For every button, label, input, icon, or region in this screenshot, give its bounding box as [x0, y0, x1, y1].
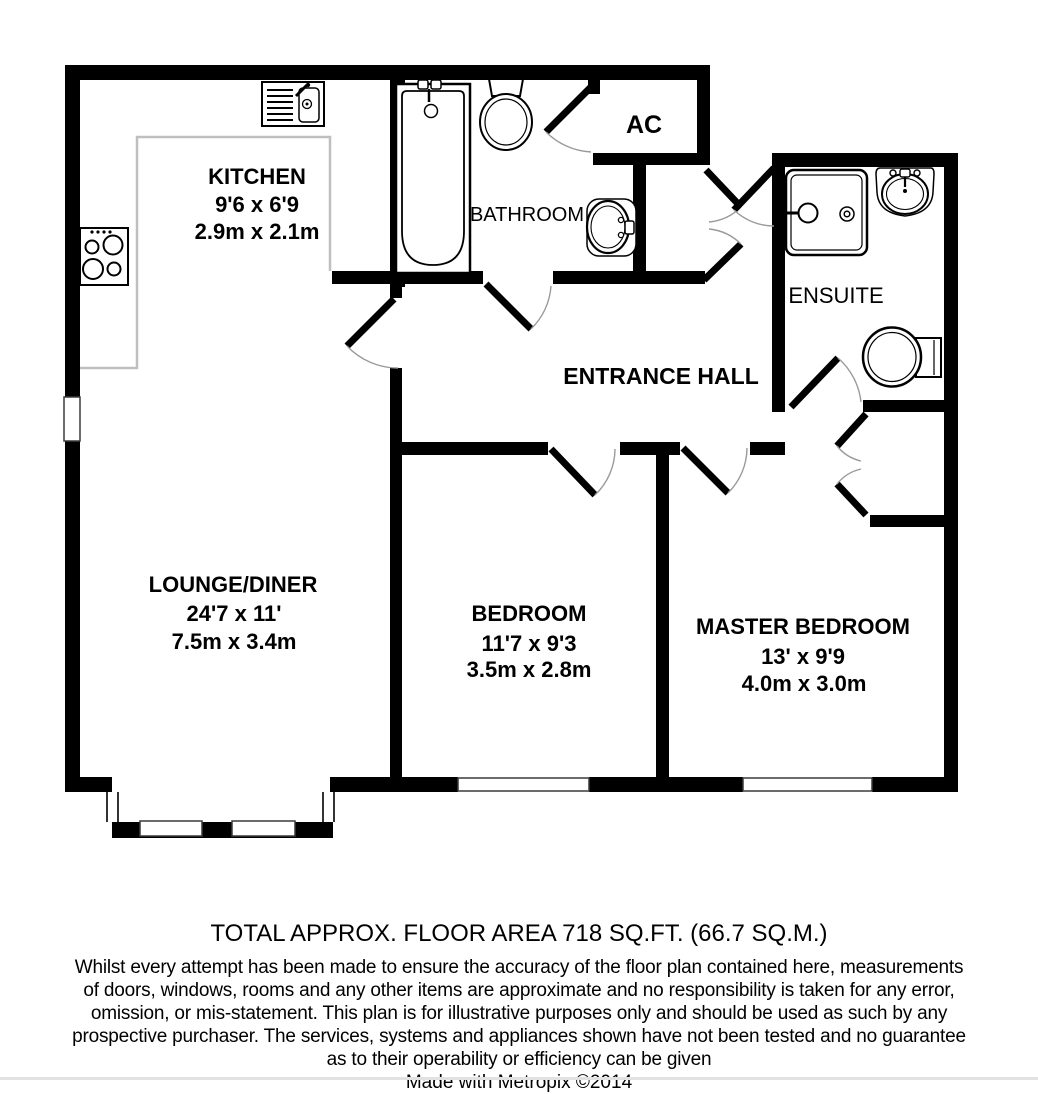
- wall-hall-bottom-2: [620, 442, 680, 455]
- wall-top: [65, 65, 710, 80]
- wall-hall-bottom-1: [397, 442, 548, 455]
- lounge-side-window: [64, 397, 80, 441]
- lounge-bay-window: [107, 792, 334, 838]
- disclaimer-line: of doors, windows, rooms and any other i…: [0, 979, 1038, 1002]
- master-bedroom-size-imperial: 13' x 9'9: [761, 644, 845, 669]
- entrance-hall-label: ENTRANCE HALL: [563, 363, 759, 389]
- hall-cupboard-doors: [704, 170, 741, 280]
- lounge-diner-size-metric: 7.5m x 3.4m: [172, 629, 297, 654]
- wall-bathroom-bottom-right: [553, 271, 705, 284]
- kitchen-sink-icon: [262, 82, 324, 126]
- wall-ac-bottom: [593, 153, 710, 165]
- bathroom-door: [486, 284, 551, 329]
- airing-cupboard-label: AC: [626, 111, 662, 139]
- wall-hall-bottom-3: [750, 442, 785, 455]
- bathroom-toilet-icon: [480, 79, 532, 150]
- front-door: [734, 168, 774, 226]
- master-bedroom-size-metric: 4.0m x 3.0m: [742, 671, 867, 696]
- ensuite-toilet-icon: [863, 328, 941, 387]
- kitchen-label: KITCHEN: [208, 164, 306, 189]
- total-floor-area: TOTAL APPROX. FLOOR AREA 718 SQ.FT. (66.…: [0, 920, 1038, 948]
- wall-lounge-bedroom: [390, 368, 402, 780]
- wall-ensuite-top: [775, 153, 944, 167]
- wall-lounge-door-jamb: [390, 284, 402, 298]
- wall-ensuite-bottom: [863, 400, 944, 412]
- hob-icon: [80, 228, 128, 285]
- master-bedroom-label: MASTER BEDROOM: [696, 614, 910, 639]
- disclaimer-line: prospective purchaser. The services, sys…: [0, 1025, 1038, 1048]
- bedroom-window: [458, 778, 589, 791]
- kitchen-size-metric: 2.9m x 2.1m: [195, 219, 320, 244]
- disclaimer-line: Whilst every attempt has been made to en…: [0, 956, 1038, 979]
- wall-bedroom-master: [656, 442, 669, 780]
- wall-wardrobe-bottom: [870, 515, 944, 527]
- wall-left-upper: [65, 65, 80, 397]
- airing-cupboard-door: [546, 83, 595, 152]
- shower-icon: [786, 170, 867, 255]
- ensuite-basin-icon: [876, 168, 934, 216]
- floor-plan: KITCHEN 9'6 x 6'9 2.9m x 2.1m BATHROOM A…: [0, 0, 1038, 905]
- bathroom-basin-icon: [587, 199, 636, 256]
- bedroom-size-metric: 3.5m x 2.8m: [467, 657, 592, 682]
- lounge-door: [347, 299, 398, 368]
- bedroom-size-imperial: 11'7 x 9'3: [482, 631, 577, 656]
- metropix-credit: Made with Metropix ©2014: [0, 1071, 1038, 1094]
- bathroom-label: BATHROOM: [470, 204, 584, 226]
- master-bedroom-window: [743, 778, 872, 791]
- master-bedroom-door: [683, 448, 747, 493]
- wall-ac-right: [697, 65, 710, 165]
- kitchen-size-imperial: 9'6 x 6'9: [215, 192, 299, 217]
- footer: TOTAL APPROX. FLOOR AREA 718 SQ.FT. (66.…: [0, 920, 1038, 1094]
- lounge-diner-size-imperial: 24'7 x 11': [187, 601, 282, 626]
- bathtub-icon: [396, 80, 470, 273]
- bedroom-door: [551, 449, 615, 495]
- bedroom-label: BEDROOM: [472, 601, 587, 626]
- disclaimer-line: as to their operability or efficiency ca…: [0, 1048, 1038, 1071]
- disclaimer-line: omission, or mis-statement. This plan is…: [0, 1002, 1038, 1025]
- wall-left-lower: [65, 441, 80, 792]
- lounge-diner-label: LOUNGE/DINER: [149, 572, 318, 597]
- ensuite-door: [791, 358, 861, 407]
- ensuite-label: ENSUITE: [788, 283, 883, 308]
- wardrobe-doors: [837, 414, 866, 515]
- wall-bottom-a: [65, 777, 112, 792]
- wall-ensuite-left: [772, 153, 785, 412]
- wall-right: [944, 153, 958, 792]
